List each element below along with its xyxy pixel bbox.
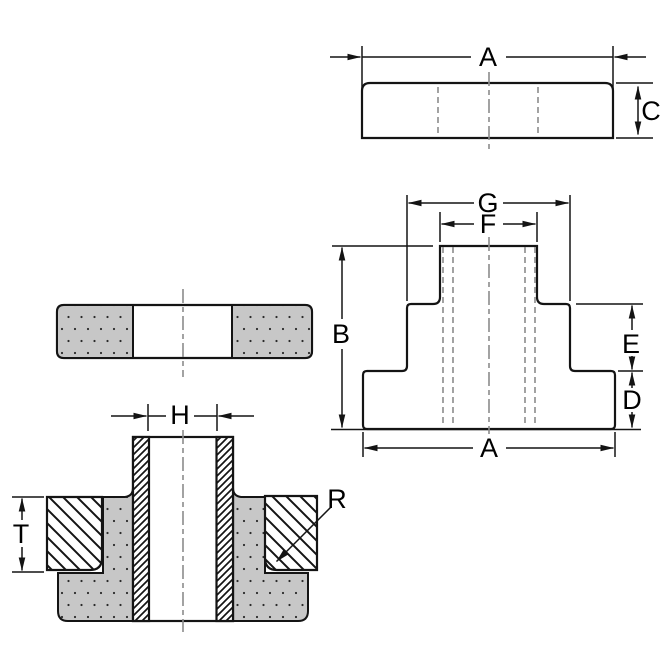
dim-d: D xyxy=(618,371,643,428)
plan-view xyxy=(57,289,312,377)
dim-label-f: F xyxy=(480,209,497,239)
dim-label-a-top: A xyxy=(479,42,497,72)
dim-h: H xyxy=(111,400,254,431)
technical-drawing-canvas: A C G xyxy=(0,0,670,670)
dim-e: E xyxy=(576,304,643,370)
drawing-svg: A C G xyxy=(0,0,670,670)
dim-label-r: R xyxy=(327,484,347,514)
top-view-outline xyxy=(362,83,613,138)
dim-label-b: B xyxy=(332,319,350,349)
plan-rubber-right xyxy=(232,305,312,358)
dim-label-h: H xyxy=(170,400,190,430)
profile-view: G F B E D xyxy=(331,188,643,463)
plan-rubber-left xyxy=(57,305,133,358)
dim-c: C xyxy=(616,83,661,138)
section-neck-wall-right xyxy=(217,437,234,621)
section-view: H T R xyxy=(12,400,347,632)
section-neck-wall-left xyxy=(133,437,149,621)
dim-label-e: E xyxy=(622,329,640,359)
dim-label-c: C xyxy=(641,96,661,126)
dim-label-a-bottom: A xyxy=(480,433,498,463)
dim-label-d: D xyxy=(622,385,642,415)
top-view: A C xyxy=(330,42,661,150)
dim-f: F xyxy=(440,209,537,242)
dim-a-bottom: A xyxy=(363,432,615,463)
dim-label-t: T xyxy=(13,519,30,549)
section-plate-right xyxy=(265,496,317,570)
dim-t: T xyxy=(12,497,44,572)
section-plate-left xyxy=(47,497,102,570)
